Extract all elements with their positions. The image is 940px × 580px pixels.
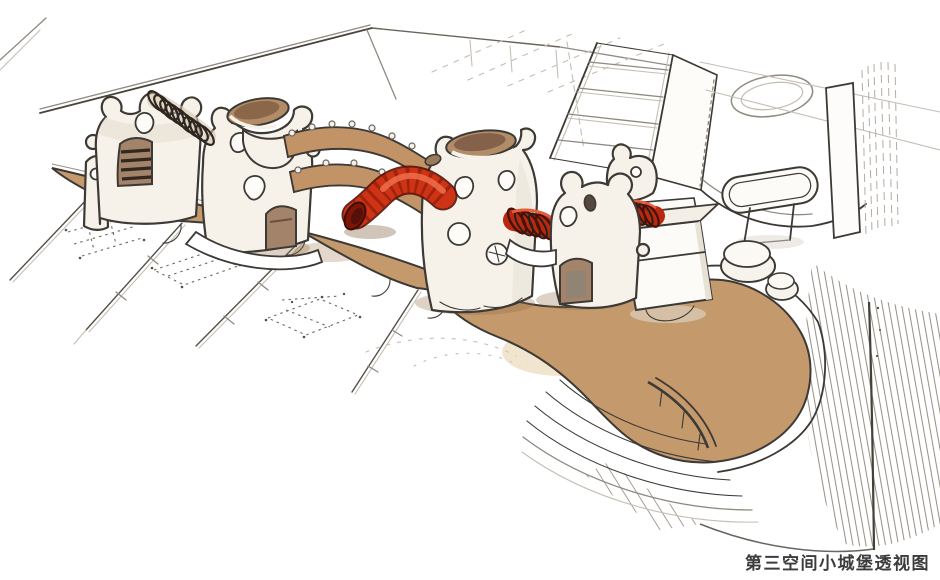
pouf-small [766,273,798,300]
drawing-caption: 第三空间小城堡透视图 [745,549,930,574]
castle-play-structures [84,88,662,315]
wall-hatch-dashes [862,62,898,236]
tall-wall-panel [826,83,860,238]
tower-door [266,206,296,250]
perspective-sketch [0,0,940,580]
pouf-large [721,241,775,282]
porthole [448,223,470,245]
teardrop-window [244,176,264,200]
floor-guide-arc [366,338,516,356]
teardrop-window [136,113,154,133]
teardrop-window [499,171,515,190]
teardrop-window [455,177,473,198]
teardrop-window [560,207,576,226]
sparse-hatch-patch [585,462,700,530]
sketch-canvas: 第三空间小城堡透视图 [0,0,940,580]
tower-top-opening [225,94,291,130]
kids-table [720,165,820,216]
wall-panel [650,55,717,190]
